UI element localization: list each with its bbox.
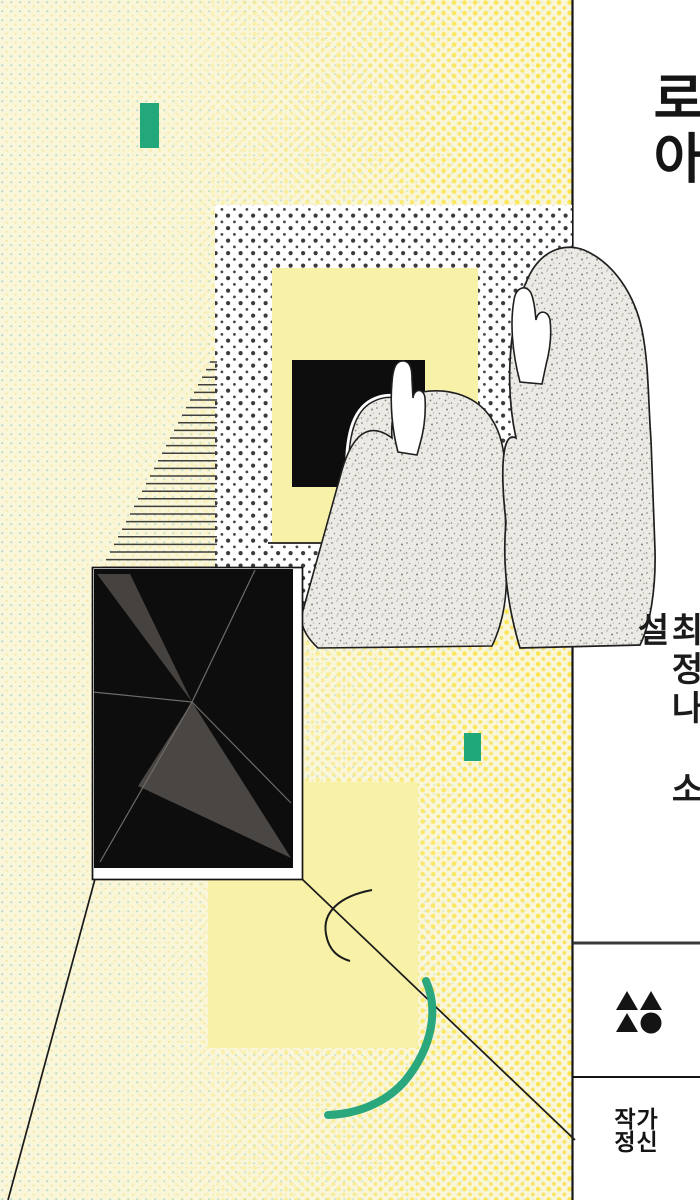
publisher-name-line2: 정신 xyxy=(573,1131,700,1154)
triangle-icon xyxy=(640,991,662,1010)
publisher-name: 작가 정신 xyxy=(573,1108,700,1154)
book-cover: 로아 최정나 소설 작가 정신 xyxy=(0,0,700,1200)
cover-artwork xyxy=(0,0,700,1200)
black-canvas-with-triangles xyxy=(93,568,303,880)
triangle-icon xyxy=(616,1013,638,1032)
publisher-logo-icon xyxy=(616,991,663,1034)
large-figure xyxy=(503,247,655,648)
circle-icon xyxy=(641,1013,662,1034)
publisher-name-line1: 작가 xyxy=(573,1108,700,1131)
green-accent-rect-top xyxy=(140,103,159,148)
green-accent-rect-middle xyxy=(464,733,481,761)
triangle-icon xyxy=(616,991,638,1010)
